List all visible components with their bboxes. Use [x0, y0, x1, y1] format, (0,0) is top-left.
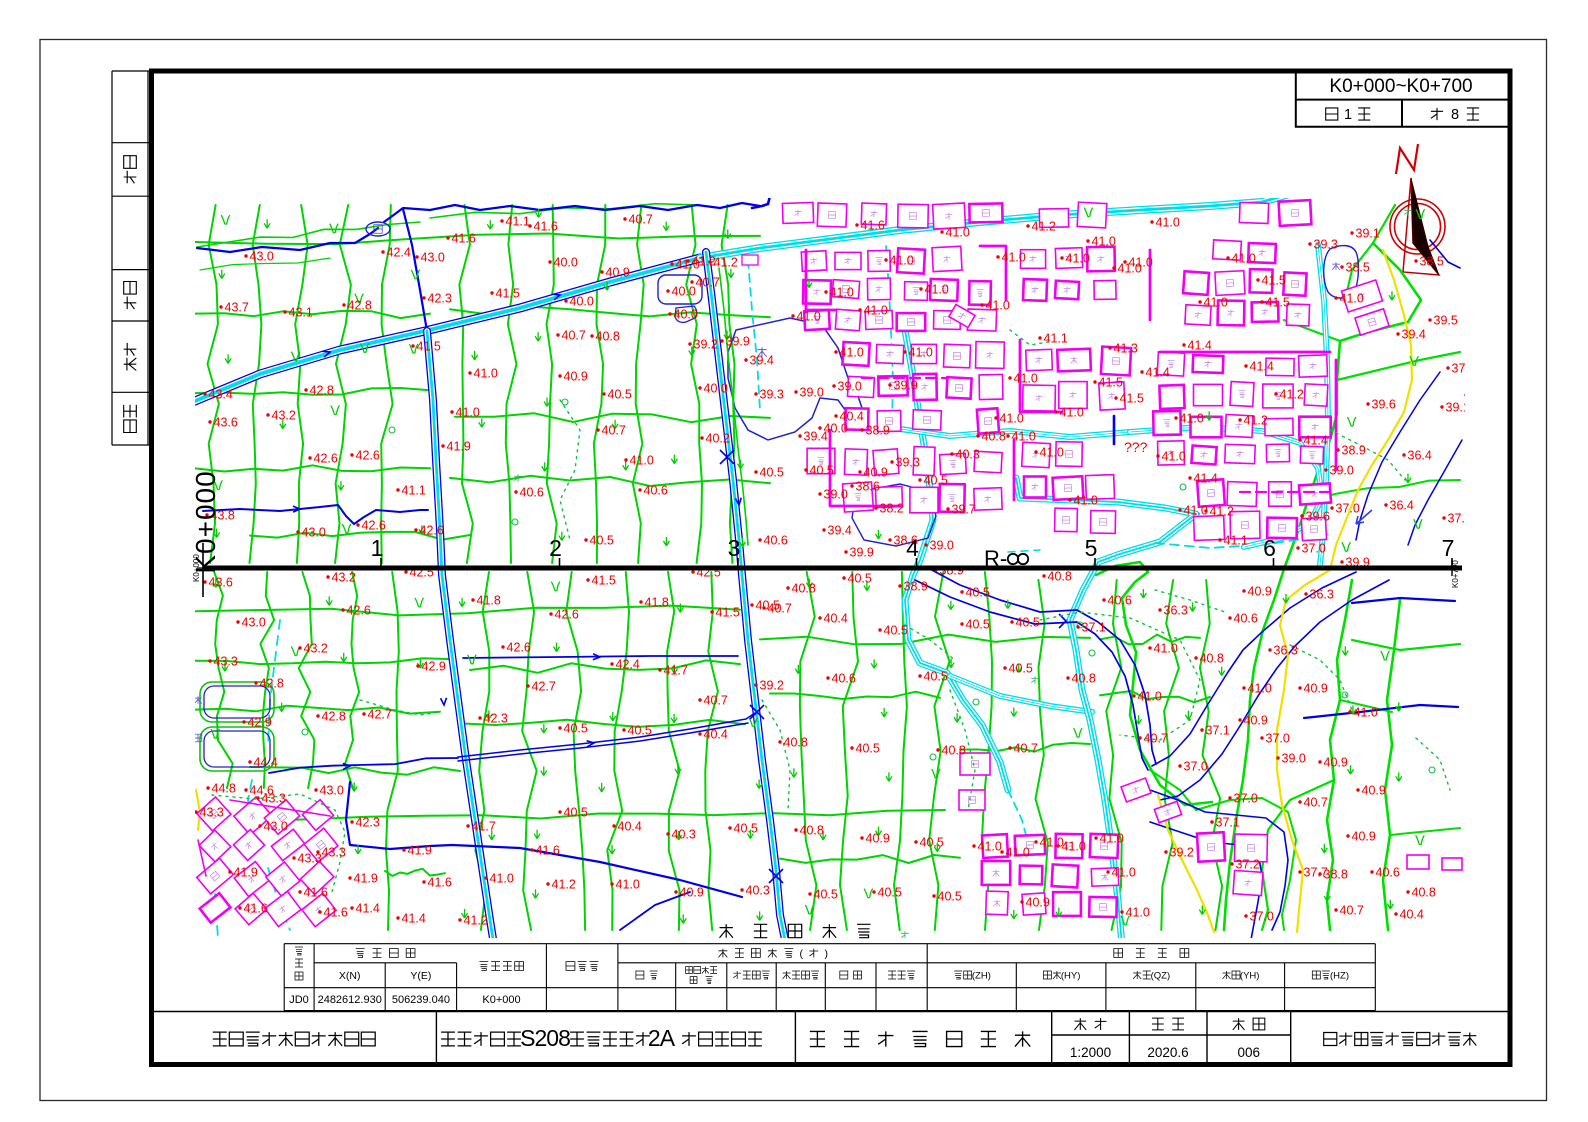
svg-text:41.5: 41.5 — [1262, 274, 1286, 288]
svg-text:41.6: 41.6 — [534, 220, 558, 234]
svg-text:43.2: 43.2 — [304, 642, 328, 656]
svg-text:40.8: 40.8 — [784, 736, 808, 750]
svg-text:1: 1 — [371, 535, 384, 561]
svg-text:41.6: 41.6 — [536, 844, 560, 858]
svg-text:39.4: 39.4 — [828, 524, 852, 538]
svg-text:38.9: 38.9 — [904, 580, 928, 594]
svg-text:40.6: 40.6 — [764, 534, 788, 548]
svg-text:41.5: 41.5 — [496, 287, 520, 301]
svg-text:R-: R- — [984, 546, 1007, 571]
svg-text:40.5: 40.5 — [564, 806, 588, 820]
svg-text:39.6: 39.6 — [1372, 398, 1396, 412]
svg-text:40.8: 40.8 — [1048, 570, 1072, 584]
svg-text:41.0: 41.0 — [830, 286, 854, 300]
svg-text:41.5: 41.5 — [1266, 296, 1290, 310]
svg-text:40.6: 40.6 — [832, 672, 856, 686]
svg-text:2482612.930: 2482612.930 — [318, 994, 382, 1006]
svg-text:38.9: 38.9 — [1342, 444, 1366, 458]
svg-text:41.2: 41.2 — [1280, 388, 1304, 402]
svg-text:41.6: 41.6 — [861, 219, 885, 233]
svg-text:39.0: 39.0 — [824, 488, 848, 502]
svg-text:40.7: 40.7 — [1144, 732, 1168, 746]
svg-text:40.4: 40.4 — [840, 410, 864, 424]
svg-text:40.5: 40.5 — [848, 572, 872, 586]
svg-text:37.1: 37.1 — [1082, 621, 1106, 635]
svg-text:37.2: 37.2 — [1236, 858, 1260, 872]
svg-text:41.6: 41.6 — [244, 902, 268, 916]
svg-text:41.4: 41.4 — [1188, 339, 1212, 353]
svg-text:42.9: 42.9 — [248, 716, 272, 730]
svg-text:43.6: 43.6 — [214, 416, 238, 430]
svg-text:42.8: 42.8 — [310, 384, 334, 398]
svg-text:41.0: 41.0 — [1184, 504, 1208, 518]
svg-text:41.0: 41.0 — [1180, 412, 1204, 426]
svg-text:S208: S208 — [520, 1025, 570, 1051]
svg-text:42.4: 42.4 — [616, 658, 640, 672]
svg-text:2: 2 — [549, 535, 562, 561]
svg-text:43.2: 43.2 — [332, 571, 356, 585]
svg-text:40.7: 40.7 — [1304, 796, 1328, 810]
svg-text:39.3: 39.3 — [760, 388, 784, 402]
svg-text:37.1: 37.1 — [1206, 724, 1230, 738]
svg-text:41.0: 41.0 — [1040, 446, 1064, 460]
svg-text:39.0: 39.0 — [1282, 752, 1306, 766]
svg-text:43.0: 43.0 — [421, 251, 445, 265]
svg-text:40.5: 40.5 — [590, 534, 614, 548]
svg-text:42.8: 42.8 — [348, 299, 372, 313]
svg-text:40.6: 40.6 — [1234, 612, 1258, 626]
svg-text:X(N): X(N) — [339, 970, 361, 982]
svg-text:40.5: 40.5 — [938, 890, 962, 904]
svg-text:41.0: 41.0 — [1232, 252, 1256, 266]
svg-text:40.5: 40.5 — [756, 599, 780, 613]
svg-text:40.5: 40.5 — [628, 724, 652, 738]
svg-text:40.8: 40.8 — [596, 330, 620, 344]
svg-text:37.1: 37.1 — [1216, 816, 1240, 830]
svg-text:41.2: 41.2 — [714, 256, 738, 270]
svg-text:???: ??? — [1124, 439, 1148, 455]
svg-text:41.0: 41.0 — [1000, 412, 1024, 426]
svg-text:41.1: 41.1 — [1044, 332, 1068, 346]
svg-text:40.6: 40.6 — [644, 484, 668, 498]
svg-text:41.8: 41.8 — [645, 596, 669, 610]
svg-text:40.0: 40.0 — [674, 308, 698, 322]
svg-text:42.7: 42.7 — [368, 708, 392, 722]
svg-text:41.0: 41.0 — [1112, 866, 1136, 880]
svg-text:40.6: 40.6 — [1376, 866, 1400, 880]
svg-text:40.9: 40.9 — [606, 266, 630, 280]
svg-text:39.5: 39.5 — [1434, 314, 1458, 328]
svg-text:42.8: 42.8 — [322, 710, 346, 724]
svg-text:4: 4 — [906, 535, 919, 561]
svg-text:37.0: 37.0 — [1234, 792, 1258, 806]
svg-text:38.5: 38.5 — [1346, 261, 1370, 275]
svg-text:40.5: 40.5 — [814, 888, 838, 902]
svg-text:39.7: 39.7 — [952, 503, 976, 517]
svg-text:40.7: 40.7 — [1340, 904, 1364, 918]
svg-text:41.0: 41.0 — [909, 346, 933, 360]
svg-text:41.9: 41.9 — [408, 844, 432, 858]
svg-text:41.6: 41.6 — [304, 886, 328, 900]
svg-text:40.9: 40.9 — [866, 832, 890, 846]
svg-text:5: 5 — [1085, 535, 1098, 561]
svg-text:41.0: 41.0 — [1012, 430, 1036, 444]
svg-text:K0+000~K0+700: K0+000~K0+700 — [1329, 76, 1472, 97]
svg-text:6: 6 — [1263, 535, 1276, 561]
svg-text:40.3: 40.3 — [746, 884, 770, 898]
svg-text:40.9: 40.9 — [864, 466, 888, 480]
svg-text:40.4: 40.4 — [704, 728, 728, 742]
svg-text:43.6: 43.6 — [209, 576, 233, 590]
svg-text:41.0: 41.0 — [474, 367, 498, 381]
svg-text:41.1: 41.1 — [402, 484, 426, 498]
svg-text:42.6: 42.6 — [347, 604, 371, 618]
svg-text:41.1: 41.1 — [1224, 534, 1248, 548]
svg-text:41.0: 41.0 — [456, 406, 480, 420]
svg-text:40.5: 40.5 — [856, 742, 880, 756]
svg-text:41.2: 41.2 — [464, 914, 488, 928]
svg-text:42.6: 42.6 — [362, 519, 386, 533]
svg-text:41.5: 41.5 — [1099, 376, 1123, 390]
svg-text:41.0: 41.0 — [1060, 406, 1084, 420]
svg-text:41.3: 41.3 — [1114, 342, 1138, 356]
svg-text:41.2: 41.2 — [1032, 220, 1056, 234]
svg-text:41.8: 41.8 — [477, 594, 501, 608]
svg-text:40.5: 40.5 — [878, 886, 902, 900]
svg-text:40.5: 40.5 — [966, 586, 990, 600]
svg-text:42.9: 42.9 — [422, 660, 446, 674]
svg-text:41.7: 41.7 — [472, 820, 496, 834]
svg-text:40.8: 40.8 — [942, 744, 966, 758]
svg-text:41.4: 41.4 — [1146, 366, 1170, 380]
svg-text:41.4: 41.4 — [356, 902, 380, 916]
svg-text:44.8: 44.8 — [212, 782, 236, 796]
svg-text:39.0: 39.0 — [1330, 464, 1354, 478]
svg-text:41.6: 41.6 — [324, 906, 348, 920]
svg-text:(QZ): (QZ) — [1151, 970, 1171, 981]
svg-text:39.2: 39.2 — [694, 338, 718, 352]
svg-text:40.9: 40.9 — [1304, 682, 1328, 696]
svg-text:41.0: 41.0 — [986, 299, 1010, 313]
svg-text:41.0: 41.0 — [946, 226, 970, 240]
svg-text:(HY): (HY) — [1061, 970, 1081, 981]
svg-text:38.2: 38.2 — [880, 502, 904, 516]
svg-text:41.0: 41.0 — [1014, 372, 1038, 386]
svg-text:41.2: 41.2 — [1210, 505, 1234, 519]
svg-text:41.5: 41.5 — [592, 574, 616, 588]
svg-text:1: 1 — [1344, 107, 1352, 123]
svg-text:36.3: 36.3 — [1310, 588, 1334, 602]
svg-text:Y(E): Y(E) — [410, 970, 431, 982]
svg-text:43.3: 43.3 — [322, 846, 346, 860]
svg-text:41.0: 41.0 — [840, 346, 864, 360]
svg-text:40.8: 40.8 — [800, 824, 824, 838]
svg-text:41.0: 41.0 — [616, 878, 640, 892]
svg-text:41.7: 41.7 — [664, 664, 688, 678]
svg-text:40.8: 40.8 — [1200, 652, 1224, 666]
svg-text:41.0: 41.0 — [1126, 906, 1150, 920]
svg-text:41.0: 41.0 — [1129, 256, 1153, 270]
svg-text:43.3: 43.3 — [200, 806, 224, 820]
svg-text:40.5: 40.5 — [608, 388, 632, 402]
svg-text:42.3: 42.3 — [484, 712, 508, 726]
svg-text:41.0: 41.0 — [1162, 450, 1186, 464]
svg-text:41.0: 41.0 — [1138, 690, 1162, 704]
svg-text:(: ( — [800, 948, 804, 960]
svg-text:41.0: 41.0 — [978, 840, 1002, 854]
svg-text:40.2: 40.2 — [706, 432, 730, 446]
svg-text:38.6: 38.6 — [856, 480, 880, 494]
svg-text:40.4: 40.4 — [1400, 908, 1424, 922]
svg-text:40.8: 40.8 — [1412, 886, 1436, 900]
svg-text:42.6: 42.6 — [555, 608, 579, 622]
svg-text:40.5: 40.5 — [564, 722, 588, 736]
svg-text:38.8: 38.8 — [1324, 868, 1348, 882]
svg-text:40.6: 40.6 — [1108, 594, 1132, 608]
svg-text:40.8: 40.8 — [982, 430, 1006, 444]
svg-text:42.6: 42.6 — [356, 449, 380, 463]
svg-text:41.0: 41.0 — [1040, 836, 1064, 850]
svg-text:(ZH): (ZH) — [972, 970, 991, 981]
svg-text:42.6: 42.6 — [420, 524, 444, 538]
svg-text:41.4: 41.4 — [402, 912, 426, 926]
svg-text:41.0: 41.0 — [1002, 251, 1026, 265]
svg-text:40.5: 40.5 — [1016, 616, 1040, 630]
svg-text:42.4: 42.4 — [387, 246, 411, 260]
svg-text:37.0: 37.0 — [1184, 760, 1208, 774]
svg-text:39.1: 39.1 — [1356, 227, 1380, 241]
svg-text:41.5: 41.5 — [716, 606, 740, 620]
svg-text:2A: 2A — [648, 1025, 676, 1051]
svg-text:42.3: 42.3 — [428, 292, 452, 306]
svg-text:41.4: 41.4 — [1194, 472, 1218, 486]
svg-text:1:2000: 1:2000 — [1070, 1045, 1111, 1060]
svg-text:41.6: 41.6 — [452, 232, 476, 246]
svg-text:37.0: 37.0 — [1302, 542, 1326, 556]
svg-text:8: 8 — [1451, 107, 1459, 123]
svg-text:43.3: 43.3 — [214, 655, 238, 669]
svg-text:39.3: 39.3 — [1314, 238, 1338, 252]
svg-text:40.7: 40.7 — [704, 694, 728, 708]
svg-text:43.1: 43.1 — [289, 306, 313, 320]
svg-text:41.0: 41.0 — [1248, 682, 1272, 696]
svg-text:40.9: 40.9 — [680, 886, 704, 900]
svg-text:43.0: 43.0 — [302, 526, 326, 540]
svg-text:39.3: 39.3 — [896, 456, 920, 470]
svg-text:40.5: 40.5 — [924, 670, 948, 684]
svg-text:40.5: 40.5 — [760, 466, 784, 480]
svg-text:39.4: 39.4 — [1402, 328, 1426, 342]
svg-text:39.9: 39.9 — [850, 546, 874, 560]
svg-text:41.0: 41.0 — [1154, 642, 1178, 656]
svg-text:41.9: 41.9 — [447, 440, 471, 454]
svg-text:40.5: 40.5 — [810, 464, 834, 478]
svg-text:40.4: 40.4 — [824, 612, 848, 626]
svg-text:41.0: 41.0 — [1204, 296, 1228, 310]
svg-text:41.0: 41.0 — [1354, 706, 1378, 720]
svg-text:39.0: 39.0 — [930, 539, 954, 553]
svg-text:41.0: 41.0 — [925, 283, 949, 297]
svg-text:41.0: 41.0 — [1066, 252, 1090, 266]
svg-text:39.4: 39.4 — [750, 354, 774, 368]
svg-text:40.7: 40.7 — [602, 424, 626, 438]
svg-text:40.0: 40.0 — [554, 256, 578, 270]
svg-text:40.5: 40.5 — [920, 836, 944, 850]
svg-text:40.3: 40.3 — [672, 828, 696, 842]
svg-text:40.9: 40.9 — [1248, 585, 1272, 599]
svg-text:7: 7 — [1442, 535, 1455, 561]
svg-text:40.5: 40.5 — [734, 822, 758, 836]
svg-text:40.8: 40.8 — [1072, 672, 1096, 686]
svg-text:39.0: 39.0 — [800, 386, 824, 400]
svg-text:43.0: 43.0 — [242, 616, 266, 630]
svg-text:41.5: 41.5 — [417, 340, 441, 354]
svg-text:43.2: 43.2 — [272, 409, 296, 423]
svg-text:41.2: 41.2 — [1244, 414, 1268, 428]
svg-text:40.0: 40.0 — [570, 295, 594, 309]
svg-text:40.9: 40.9 — [1362, 784, 1386, 798]
svg-text:41.4: 41.4 — [1250, 360, 1274, 374]
svg-text:44.4: 44.4 — [254, 756, 278, 770]
svg-text:40.7: 40.7 — [1014, 742, 1038, 756]
svg-text:40.0: 40.0 — [672, 285, 696, 299]
svg-text:40.6: 40.6 — [520, 486, 544, 500]
svg-text:40.5: 40.5 — [966, 618, 990, 632]
svg-text:41.0: 41.0 — [1074, 494, 1098, 508]
svg-text:41.0: 41.0 — [676, 258, 700, 272]
svg-text:39.2: 39.2 — [760, 679, 784, 693]
svg-text:41.0: 41.0 — [1006, 846, 1030, 860]
svg-text:41.9: 41.9 — [354, 872, 378, 886]
svg-text:38.9: 38.9 — [866, 424, 890, 438]
svg-text:41.0: 41.0 — [1092, 235, 1116, 249]
svg-text:43.4: 43.4 — [209, 388, 233, 402]
svg-text:41.0: 41.0 — [1156, 216, 1180, 230]
svg-text:40.4: 40.4 — [618, 820, 642, 834]
svg-text:006: 006 — [1238, 1045, 1261, 1060]
svg-text:40.0: 40.0 — [704, 382, 728, 396]
svg-text:41.1: 41.1 — [506, 215, 530, 229]
svg-text:40.5: 40.5 — [924, 474, 948, 488]
svg-text:42.8: 42.8 — [260, 677, 284, 691]
svg-text:36.3: 36.3 — [1274, 644, 1298, 658]
svg-text:41.4: 41.4 — [1304, 434, 1328, 448]
svg-text:41.9: 41.9 — [234, 866, 258, 880]
svg-text:40.5: 40.5 — [1009, 662, 1033, 676]
svg-text:40.7: 40.7 — [696, 276, 720, 290]
svg-text:39.2: 39.2 — [1170, 846, 1194, 860]
svg-text:41.0: 41.0 — [630, 454, 654, 468]
svg-text:43.0: 43.0 — [320, 784, 344, 798]
svg-text:41.0: 41.0 — [864, 304, 888, 318]
svg-text:36.4: 36.4 — [1408, 449, 1432, 463]
svg-text:37.0: 37.0 — [1250, 910, 1274, 924]
svg-text:43.7: 43.7 — [225, 301, 249, 315]
svg-text:41.0: 41.0 — [1062, 840, 1086, 854]
svg-text:41.0: 41.0 — [890, 254, 914, 268]
svg-text:K0+000: K0+000 — [482, 994, 520, 1006]
svg-text:41.5: 41.5 — [1120, 392, 1144, 406]
svg-text:40.9: 40.9 — [1026, 896, 1050, 910]
svg-text:43.3: 43.3 — [262, 792, 286, 806]
svg-text:43.0: 43.0 — [264, 820, 288, 834]
svg-text:40.9: 40.9 — [564, 370, 588, 384]
svg-text:40.9: 40.9 — [1244, 714, 1268, 728]
svg-text:39.9: 39.9 — [726, 335, 750, 349]
svg-text:37.0: 37.0 — [1336, 502, 1360, 516]
svg-text:37.0: 37.0 — [1266, 732, 1290, 746]
svg-text:JD0: JD0 — [289, 994, 309, 1006]
svg-text:43.0: 43.0 — [250, 250, 274, 264]
svg-text:3: 3 — [728, 535, 741, 561]
svg-text:40.9: 40.9 — [1352, 830, 1376, 844]
svg-text:40.9: 40.9 — [1324, 756, 1348, 770]
svg-text:41.0: 41.0 — [1100, 832, 1124, 846]
svg-text:40.7: 40.7 — [629, 213, 653, 227]
svg-text:): ) — [825, 948, 829, 960]
svg-text:41.0: 41.0 — [490, 872, 514, 886]
svg-text:40.3: 40.3 — [956, 448, 980, 462]
svg-text:38.5: 38.5 — [1420, 255, 1444, 269]
svg-text:(YH): (YH) — [1240, 970, 1260, 981]
svg-text:40.5: 40.5 — [884, 624, 908, 638]
svg-text:36.3: 36.3 — [1164, 604, 1188, 618]
svg-text:39.0: 39.0 — [838, 380, 862, 394]
svg-text:36.4: 36.4 — [1390, 499, 1414, 513]
svg-text:39.6: 39.6 — [1306, 510, 1330, 524]
svg-text:40.8: 40.8 — [792, 582, 816, 596]
svg-text:42.6: 42.6 — [314, 452, 338, 466]
svg-text:41.0: 41.0 — [797, 310, 821, 324]
svg-text:41.2: 41.2 — [552, 878, 576, 892]
svg-text:41.6: 41.6 — [428, 876, 452, 890]
svg-text:2020.6: 2020.6 — [1147, 1045, 1188, 1060]
svg-text:K0+000: K0+000 — [190, 470, 221, 573]
svg-text:39.9: 39.9 — [894, 379, 918, 393]
svg-text:42.7: 42.7 — [532, 680, 556, 694]
svg-text:39.4: 39.4 — [804, 430, 828, 444]
svg-text:40.7: 40.7 — [562, 329, 586, 343]
svg-text:42.6: 42.6 — [507, 641, 531, 655]
svg-text:506239.040: 506239.040 — [392, 994, 450, 1006]
svg-text:(HZ): (HZ) — [1330, 970, 1349, 981]
svg-text:42.3: 42.3 — [356, 816, 380, 830]
svg-text:41.0: 41.0 — [1340, 292, 1364, 306]
